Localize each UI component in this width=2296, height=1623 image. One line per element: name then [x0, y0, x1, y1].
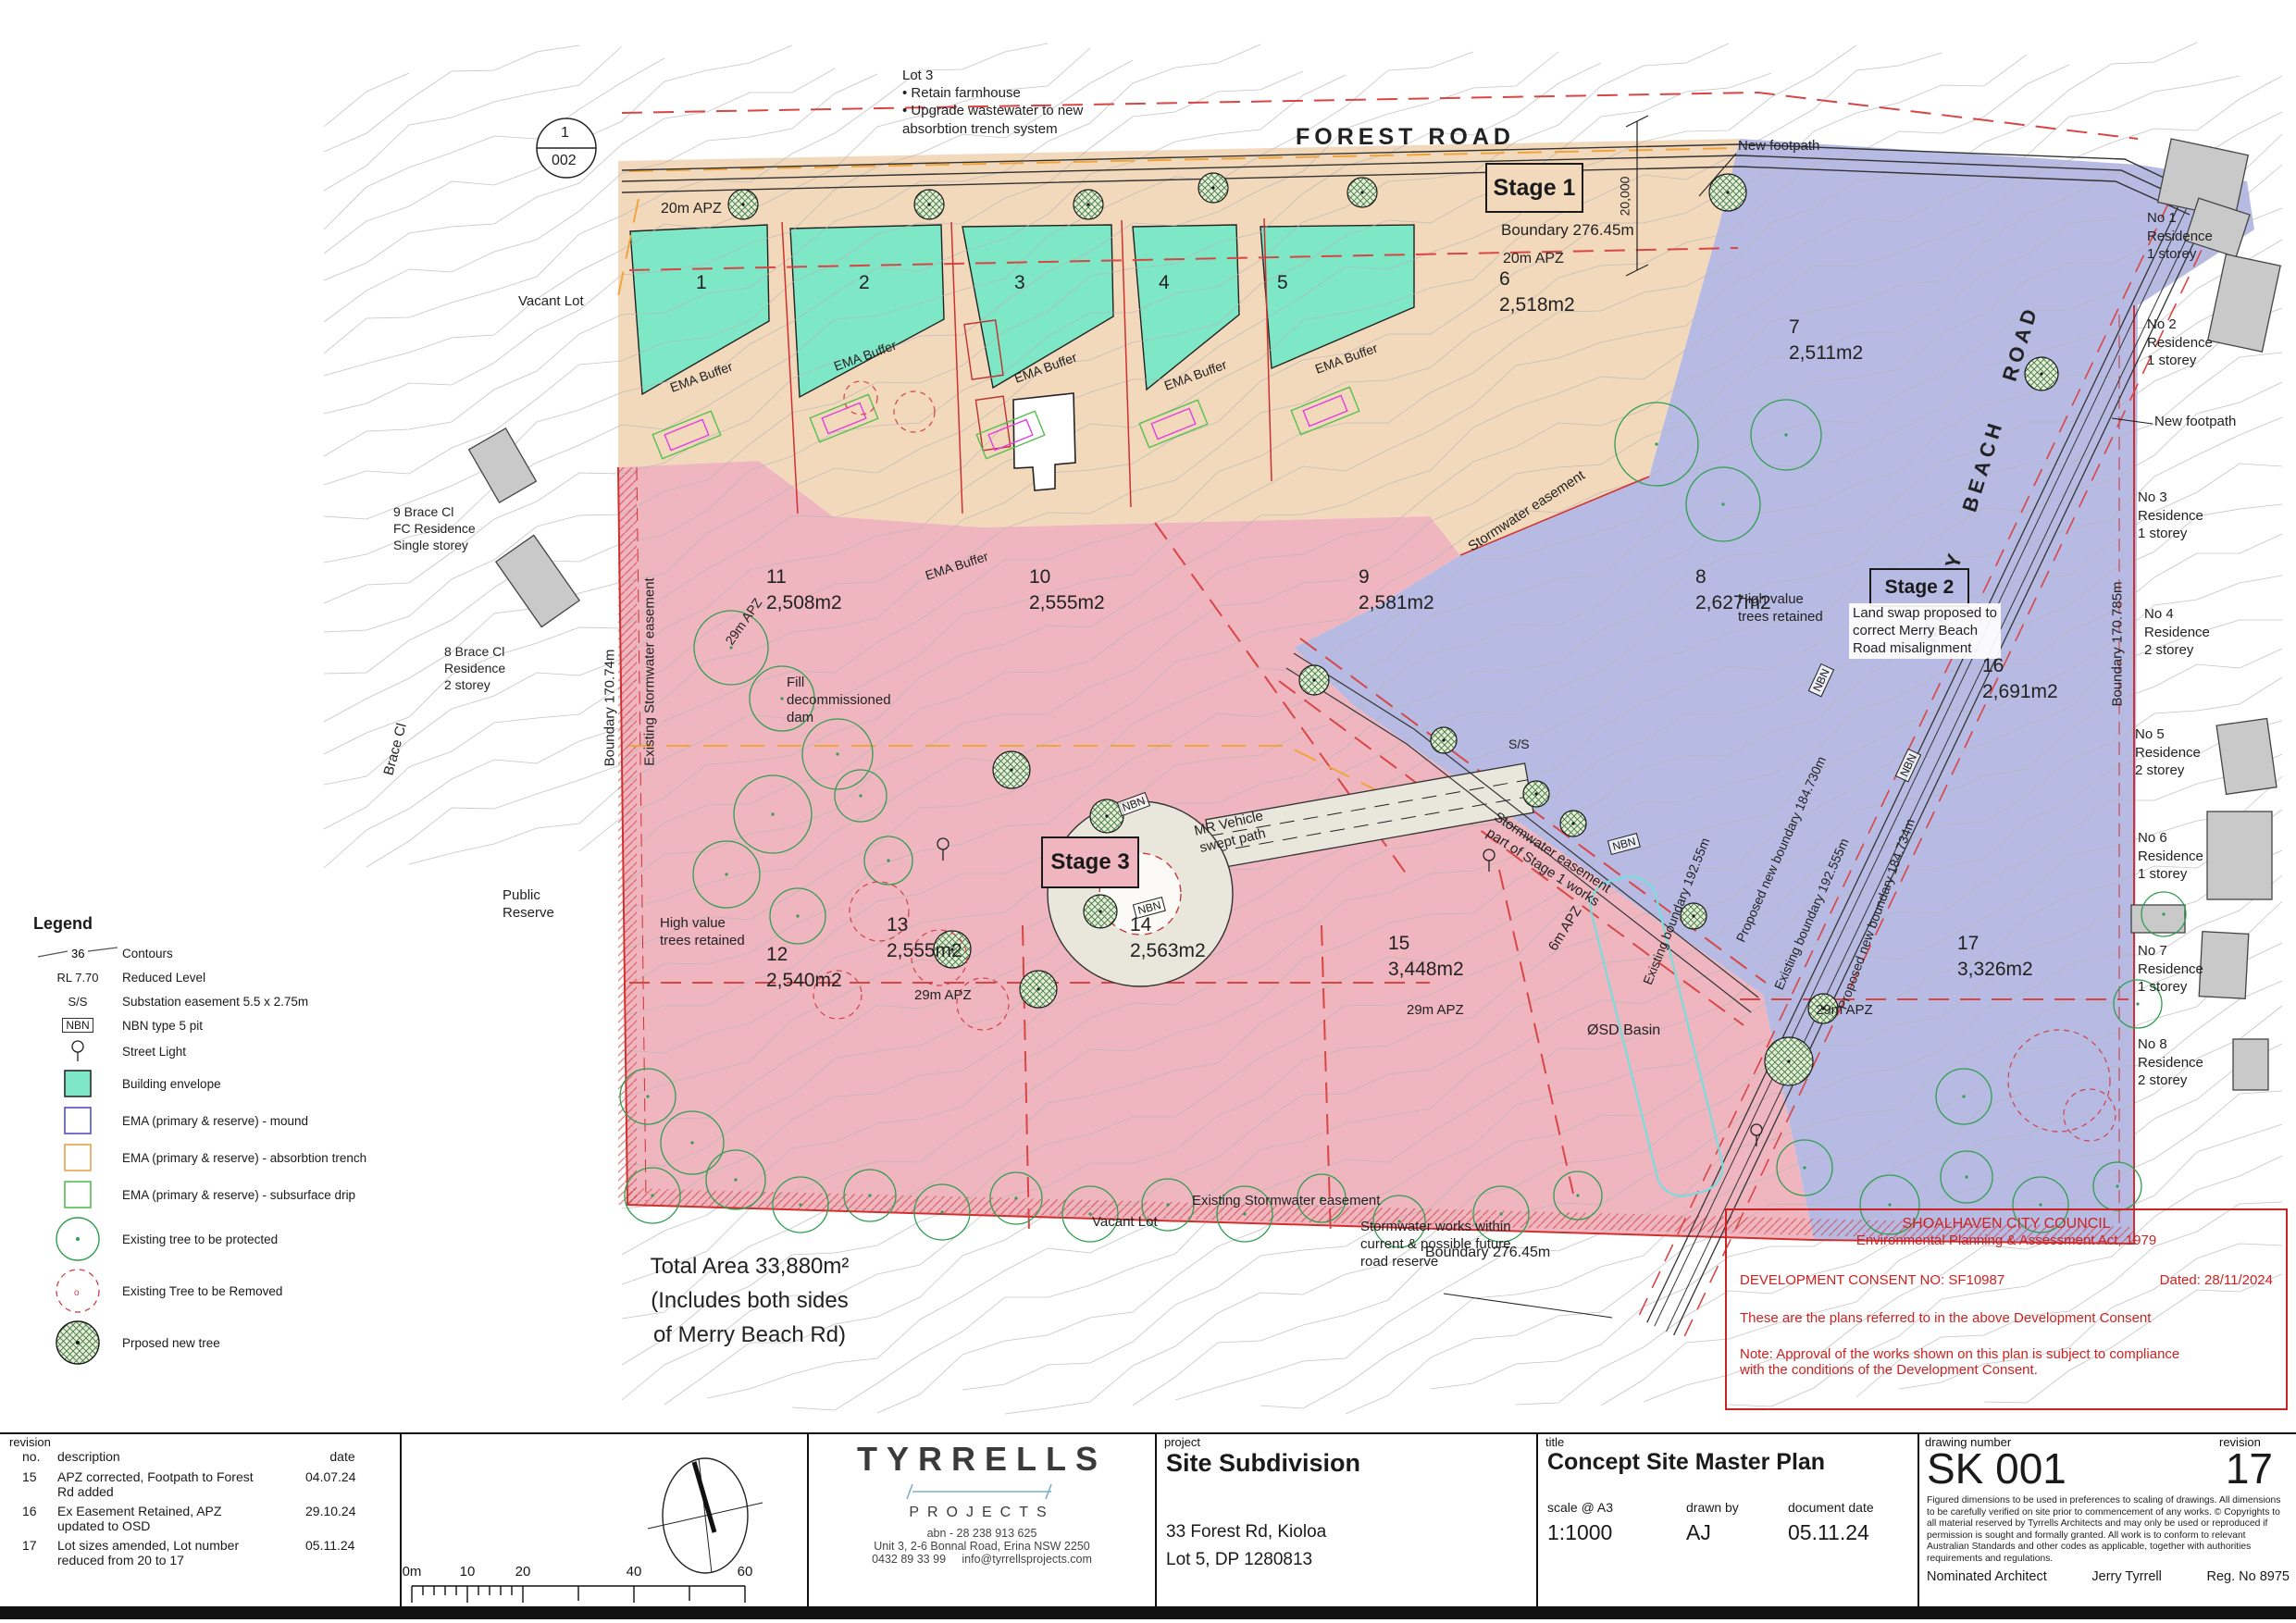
contour-line — [324, 58, 664, 229]
tree-center-dot — [1086, 203, 1089, 205]
tree-center-dot — [887, 859, 889, 861]
lot-label-12: 12 2,540m2 — [766, 942, 842, 995]
lot-label-17: 17 3,326m2 — [1957, 931, 2033, 984]
architect-name: Jerry Tyrrell — [2091, 1569, 2161, 1584]
legend-label: Existing Tree to be Removed — [122, 1284, 282, 1298]
tree-center-dot — [1784, 433, 1787, 436]
tree-center-dot — [1888, 1203, 1891, 1206]
stage3-box: Stage 3 — [1041, 836, 1139, 888]
legend-symbol-box-icon — [33, 1180, 122, 1209]
residence-label-6: No 6 Residence 1 storey — [2138, 829, 2203, 884]
tree-center-dot — [2116, 1184, 2118, 1187]
legend-symbol-tree1-icon: o — [33, 1267, 122, 1315]
legend-label: NBN type 5 pit — [122, 1019, 203, 1033]
legend-label: Substation easement 5.5 x 2.75m — [122, 995, 308, 1009]
legend-label: Prposed new tree — [122, 1336, 220, 1350]
tree-center-dot — [1965, 1175, 1967, 1178]
residence-label-1: No 1 Residence 1 storey — [2147, 209, 2213, 264]
tree-center-dot — [1803, 1166, 1806, 1169]
apz20-left-label: 20m APZ — [661, 200, 722, 218]
legend-item: EMA (primary & reserve) - absorbtion tre… — [33, 1141, 422, 1174]
legend-item: S/SSubstation easement 5.5 x 2.75m — [33, 991, 422, 1011]
stage1-box: Stage 1 — [1485, 163, 1583, 213]
legend-item: EMA (primary & reserve) - subsurface dri… — [33, 1178, 422, 1211]
tree-center-dot — [1098, 910, 1101, 912]
legend-label: EMA (primary & reserve) - mound — [122, 1114, 308, 1128]
rev-col-desc: description — [57, 1449, 305, 1464]
council-note: Note: Approval of the works shown on thi… — [1727, 1346, 2286, 1378]
architect-reg: Reg. No 8975 — [2207, 1569, 2290, 1584]
boundary-170-785: Boundary 170.785m — [2110, 581, 2128, 706]
ss-label: S/S — [1508, 737, 1530, 753]
tree-center-dot — [859, 794, 862, 797]
stormwater-works-note: Stormwater works within current & possib… — [1360, 1218, 1511, 1271]
boundary-hatch-left — [618, 467, 637, 1205]
boundary-170-74: Boundary 170.74m — [602, 650, 620, 767]
tree-center-dot — [729, 646, 732, 649]
residence-label-2: No 2 Residence 1 storey — [2147, 316, 2213, 370]
legend-symbol-box-icon — [33, 1143, 122, 1172]
tree-center-dot — [725, 873, 727, 875]
tree-center-dot — [1010, 768, 1012, 771]
legend-label: Existing tree to be protected — [122, 1233, 278, 1246]
forest-road-label: FOREST ROAD — [1296, 122, 1515, 152]
legend-symbol-tree2-icon — [33, 1319, 122, 1367]
lot-label-6: 6 2,518m2 — [1499, 266, 1575, 319]
drawing-number-value: SK 001 — [1927, 1443, 2066, 1493]
contour-line — [324, 73, 409, 127]
residence-label-7: No 7 Residence 1 storey — [2138, 942, 2203, 997]
svg-text:36: 36 — [71, 947, 84, 960]
tree-center-dot — [2136, 1002, 2139, 1005]
lot-label-1: 1 — [696, 270, 707, 296]
tree-center-dot — [1442, 738, 1445, 741]
lot-label-2: 2 — [859, 270, 870, 296]
titleblock-bottom-bar — [0, 1606, 2296, 1619]
legend-symbol-nbnbox-icon: NBN — [33, 1018, 122, 1033]
lot-label-4: 4 — [1159, 270, 1170, 296]
tree-center-dot — [2040, 372, 2042, 375]
legend-symbol-tree0-icon — [33, 1215, 122, 1263]
tree-center-dot — [1571, 822, 1574, 824]
lot-label-3: 3 — [1014, 270, 1025, 296]
legend-label: Contours — [122, 947, 173, 960]
lot-label-9: 9 2,581m2 — [1359, 564, 1434, 617]
detail-marker-top: 1 — [561, 124, 569, 142]
firm-abn: abn - 28 238 913 625 — [809, 1527, 1155, 1540]
drawn-by-value: AJ — [1686, 1520, 1788, 1545]
tree-center-dot — [2162, 912, 2165, 915]
high-value-2: High value trees retained — [660, 914, 745, 949]
tree-center-dot — [799, 1203, 801, 1206]
nominated-architect-label: Nominated Architect — [1927, 1569, 2047, 1584]
firm-sub: PROJECTS — [809, 1505, 1155, 1521]
tree-center-dot — [2039, 1203, 2042, 1206]
council-approval-box: SHOALHAVEN CITY COUNCIL Environmental Pl… — [1725, 1208, 2288, 1410]
tree-center-dot — [741, 203, 744, 205]
council-dated: Dated: 28/11/2024 — [2160, 1272, 2273, 1288]
council-consent-no: DEVELOPMENT CONSENT NO: SF10987 — [1740, 1272, 2004, 1288]
tree-center-dot — [1243, 1212, 1246, 1215]
vacant-lot-bottom-label: Vacant Lot — [1092, 1213, 1158, 1231]
brace8-label: 8 Brace Cl Residence 2 storey — [444, 644, 505, 694]
lot-label-14: 14 2,563m2 — [1130, 912, 1206, 965]
boundary-top-label: Boundary 276.45m — [1501, 220, 1634, 241]
tree-center-dot — [1312, 678, 1315, 681]
revision-row: 17 Lot sizes amended, Lot number reduced… — [22, 1538, 392, 1567]
lot-label-16: 16 2,691m2 — [1982, 653, 2058, 706]
tree-center-dot — [1534, 792, 1537, 795]
tree-center-dot — [940, 1210, 943, 1213]
scale-bar-tick-label: 60 — [732, 1564, 758, 1580]
lot-label-5: 5 — [1277, 270, 1288, 296]
legend-label: EMA (primary & reserve) - absorbtion tre… — [122, 1151, 366, 1165]
project-section-label: project — [1164, 1435, 1200, 1449]
brace9-label: 9 Brace Cl FC Residence Single storey — [393, 504, 476, 554]
revision-date: 04.07.24 — [305, 1469, 379, 1499]
firm-email: info@tyrrellsprojects.com — [962, 1553, 1092, 1566]
dim-20000-label: 20,000 — [1617, 177, 1633, 217]
lot-label-7: 7 2,511m2 — [1789, 315, 1863, 367]
new-footpath-top-label: New footpath — [1738, 137, 1819, 155]
tree-center-dot — [1499, 1212, 1502, 1215]
revision-description: Ex Easement Retained, APZ updated to OSD — [57, 1504, 305, 1533]
detail-marker-bottom: 002 — [552, 152, 577, 170]
revision-row: 16 Ex Easement Retained, APZ updated to … — [22, 1504, 392, 1533]
disclaimer: Figured dimensions to be used in prefere… — [1927, 1495, 2290, 1565]
tree-center-dot — [1014, 1196, 1017, 1199]
revision-no: 15 — [22, 1469, 57, 1499]
drawing-revision-value: 17 — [2226, 1443, 2273, 1493]
apz29-lot15: 29m APZ — [1407, 1001, 1464, 1019]
lot-label-11: 11 2,508m2 — [766, 564, 842, 617]
tree-center-dot — [1726, 191, 1729, 193]
apz29-lot17: 29m APZ — [1816, 1001, 1873, 1019]
legend-symbol-box-icon — [33, 1106, 122, 1135]
tree-center-dot — [1655, 442, 1657, 445]
tree-center-dot — [1105, 814, 1108, 817]
tree-center-dot — [771, 812, 774, 815]
council-name: SHOALHAVEN CITY COUNCIL — [1727, 1216, 2286, 1233]
stage2-label: Stage 2 — [1885, 576, 1955, 599]
tree-center-dot — [646, 1095, 649, 1097]
project-address1: 33 Forest Rd, Kioloa — [1166, 1522, 1527, 1542]
lot-label-8: 8 2,627m2 — [1695, 564, 1771, 617]
public-reserve-label: Public Reserve — [503, 886, 554, 922]
legend-item: EMA (primary & reserve) - mound — [33, 1104, 422, 1137]
revision-no: 16 — [22, 1504, 57, 1533]
legend-label: Reduced Level — [122, 971, 205, 985]
legend: Legend 36ContoursRL 7.70Reduced LevelS/S… — [33, 914, 422, 1370]
doc-date-value: 05.11.24 — [1788, 1520, 1908, 1545]
residence-label-5: No 5 Residence 2 storey — [2135, 725, 2201, 780]
legend-item: Street Light — [33, 1039, 422, 1063]
tree-center-dot — [927, 203, 930, 205]
residence-label-8: No 8 Residence 2 storey — [2138, 1035, 2203, 1090]
stage3-label: Stage 3 — [1050, 849, 1129, 875]
legend-item: RL 7.70Reduced Level — [33, 967, 422, 987]
revision-date: 05.11.24 — [305, 1538, 379, 1567]
doc-date-label: document date — [1788, 1500, 1908, 1515]
revision-section-label: revision — [9, 1435, 51, 1449]
lot-label-13: 13 2,555m2 — [887, 912, 962, 965]
residence-label-4: No 4 Residence 2 storey — [2144, 605, 2210, 660]
tree-center-dot — [836, 752, 838, 755]
scale-bar-tick-label: 20 — [510, 1564, 536, 1580]
fill-dam-label: Fill decommissioned dam — [787, 674, 891, 727]
tree-center-dot — [690, 1141, 693, 1144]
tree-center-dot — [734, 1178, 737, 1181]
tree-center-dot — [1721, 502, 1724, 505]
residence-label-3: No 3 Residence 1 storey — [2138, 489, 2203, 543]
tree-center-dot — [1576, 1194, 1579, 1196]
council-act: Environmental Planning & Assessment Act,… — [1727, 1233, 2286, 1248]
apz29-lot13: 29m APZ — [914, 986, 972, 1004]
tree-center-dot — [1787, 1059, 1790, 1062]
legend-symbol-box-icon — [33, 1069, 122, 1098]
council-referred: These are the plans referred to in the a… — [1727, 1310, 2286, 1326]
lot-label-15: 15 3,448m2 — [1388, 931, 1464, 984]
revision-description: Lot sizes amended, Lot number reduced fr… — [57, 1538, 305, 1567]
drawn-by-label: drawn by — [1686, 1500, 1788, 1515]
scale-bar-tick-label: 10 — [454, 1564, 480, 1580]
legend-title: Legend — [33, 914, 422, 934]
existing-sw-easement-v: Existing Stormwater easement — [642, 577, 660, 765]
scale-bar-tick-label: 0m — [399, 1564, 425, 1580]
scale-value: 1:1000 — [1547, 1520, 1686, 1545]
project-address2: Lot 5, DP 1280813 — [1166, 1550, 1527, 1570]
firm-phone: 0432 89 33 99 — [872, 1553, 946, 1566]
tree-center-dot — [796, 914, 799, 917]
tree-center-dot — [780, 697, 783, 700]
firm-address: Unit 3, 2-6 Bonnal Road, Erina NSW 2250 — [809, 1540, 1155, 1553]
revision-description: APZ corrected, Footpath to Forest Rd add… — [57, 1469, 305, 1499]
legend-item: NBNNBN type 5 pit — [33, 1015, 422, 1035]
legend-symbol-light-icon — [33, 1039, 122, 1063]
lot3-note: Lot 3 • Retain farmhouse • Upgrade waste… — [902, 67, 1083, 138]
legend-label: EMA (primary & reserve) - subsurface dri… — [122, 1188, 355, 1202]
scale-bar — [412, 1586, 745, 1603]
vacant-lot-top-label: Vacant Lot — [518, 292, 584, 310]
scale-bar-tick-label: 40 — [621, 1564, 647, 1580]
legend-symbol-contour-icon: 36 — [33, 944, 122, 962]
drawing-title: Concept Site Master Plan — [1547, 1449, 1853, 1476]
tree-center-dot — [1962, 1095, 1965, 1097]
firm-name: TYRRELLS — [809, 1440, 1155, 1479]
tree-center-dot — [1036, 987, 1039, 990]
legend-symbol-text-icon: S/S — [33, 995, 122, 1009]
legend-item: oExisting Tree to be Removed — [33, 1267, 422, 1315]
revision-row: 15 APZ corrected, Footpath to Forest Rd … — [22, 1469, 392, 1499]
title-section-label: title — [1545, 1435, 1564, 1449]
existing-sw-easement-h: Existing Stormwater easement — [1192, 1192, 1380, 1209]
revision-table: no. description date 15 APZ corrected, F… — [22, 1449, 392, 1572]
legend-label: Building envelope — [122, 1077, 221, 1091]
rev-col-no: no. — [22, 1449, 57, 1464]
tree-center-dot — [868, 1194, 871, 1196]
project-name: Site Subdivision — [1166, 1449, 1527, 1478]
tree-center-dot — [1692, 914, 1694, 917]
tree-center-dot — [1166, 1203, 1169, 1206]
rev-col-date: date — [305, 1449, 379, 1464]
legend-item: 36Contours — [33, 943, 422, 963]
legend-item: Building envelope — [33, 1067, 422, 1100]
north-arrow-icon — [648, 1458, 763, 1573]
legend-symbol-text-icon: RL 7.70 — [33, 971, 122, 985]
legend-label: Street Light — [122, 1045, 186, 1059]
tree-center-dot — [1360, 191, 1363, 193]
osd-basin-label: ØSD Basin — [1587, 1022, 1660, 1040]
legend-item: Prposed new tree — [33, 1319, 422, 1367]
stage2-box: Stage 2 — [1869, 568, 1969, 607]
site-plan-sheet: 1 002 Lot 3 • Retain farmhouse • Upgrade… — [0, 0, 2296, 1623]
total-area-note: Total Area 33,880m² (Includes both sides… — [615, 1249, 884, 1353]
stage1-label: Stage 1 — [1494, 175, 1576, 202]
scale-label: scale @ A3 — [1547, 1500, 1686, 1515]
land-swap-note: Land swap proposed to correct Merry Beac… — [1849, 603, 2001, 659]
lot-label-10: 10 2,555m2 — [1029, 564, 1105, 617]
legend-item: Existing tree to be protected — [33, 1215, 422, 1263]
tree-center-dot — [651, 1194, 653, 1196]
revision-no: 17 — [22, 1538, 57, 1567]
tree-center-dot — [1211, 186, 1214, 189]
new-footpath-right-label: New footpath — [2154, 413, 2236, 430]
svg-text:o: o — [74, 1288, 80, 1298]
revision-date: 29.10.24 — [305, 1504, 379, 1533]
